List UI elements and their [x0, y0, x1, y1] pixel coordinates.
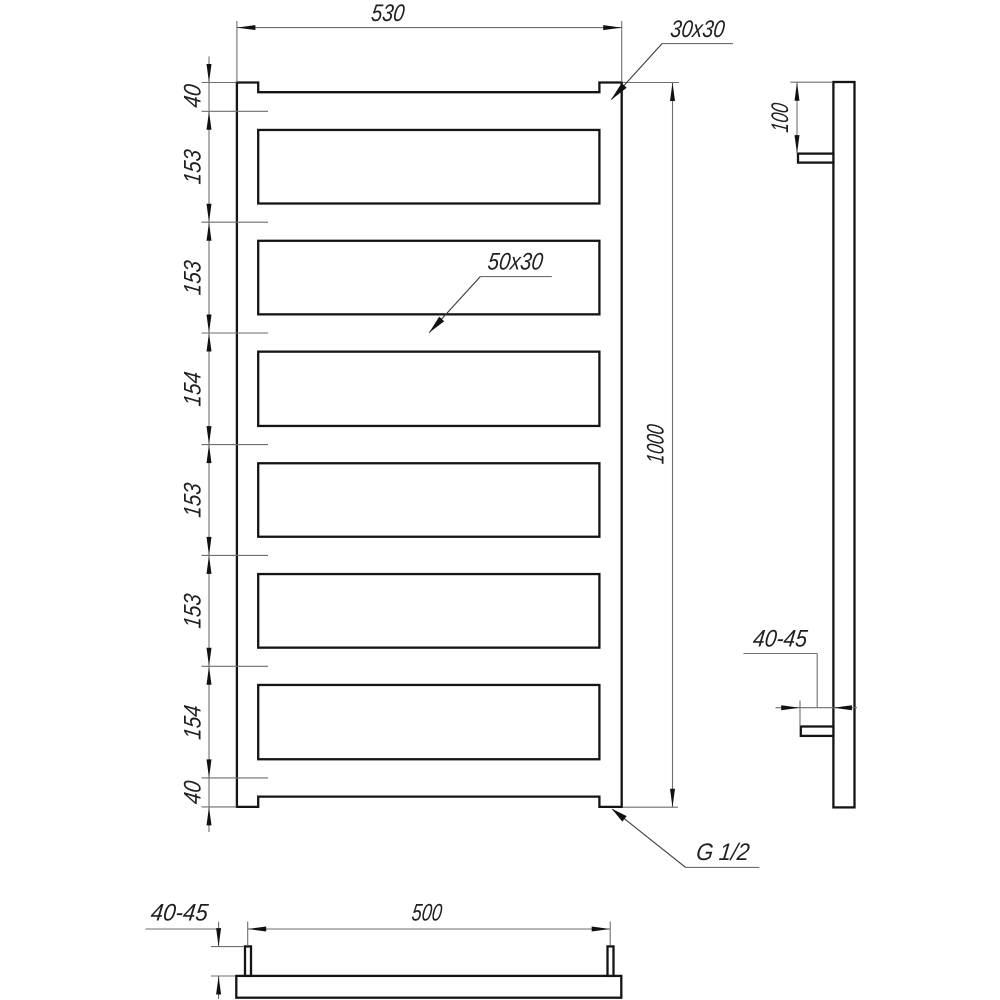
svg-text:40-45: 40-45	[149, 899, 210, 926]
svg-text:530: 530	[370, 0, 407, 27]
svg-text:153: 153	[179, 259, 206, 297]
svg-text:1000: 1000	[642, 423, 669, 466]
svg-text:50x30: 50x30	[486, 248, 545, 275]
svg-text:40-45: 40-45	[752, 626, 810, 653]
svg-text:153: 153	[179, 592, 206, 630]
svg-text:154: 154	[179, 370, 206, 407]
svg-text:100: 100	[767, 101, 794, 134]
svg-text:500: 500	[410, 899, 444, 926]
svg-text:40: 40	[179, 82, 206, 109]
svg-text:153: 153	[179, 148, 206, 186]
svg-text:154: 154	[179, 704, 206, 741]
svg-text:G 1/2: G 1/2	[695, 839, 752, 866]
svg-text:40: 40	[179, 779, 206, 806]
svg-text:153: 153	[179, 481, 206, 519]
svg-text:30x30: 30x30	[669, 16, 727, 43]
